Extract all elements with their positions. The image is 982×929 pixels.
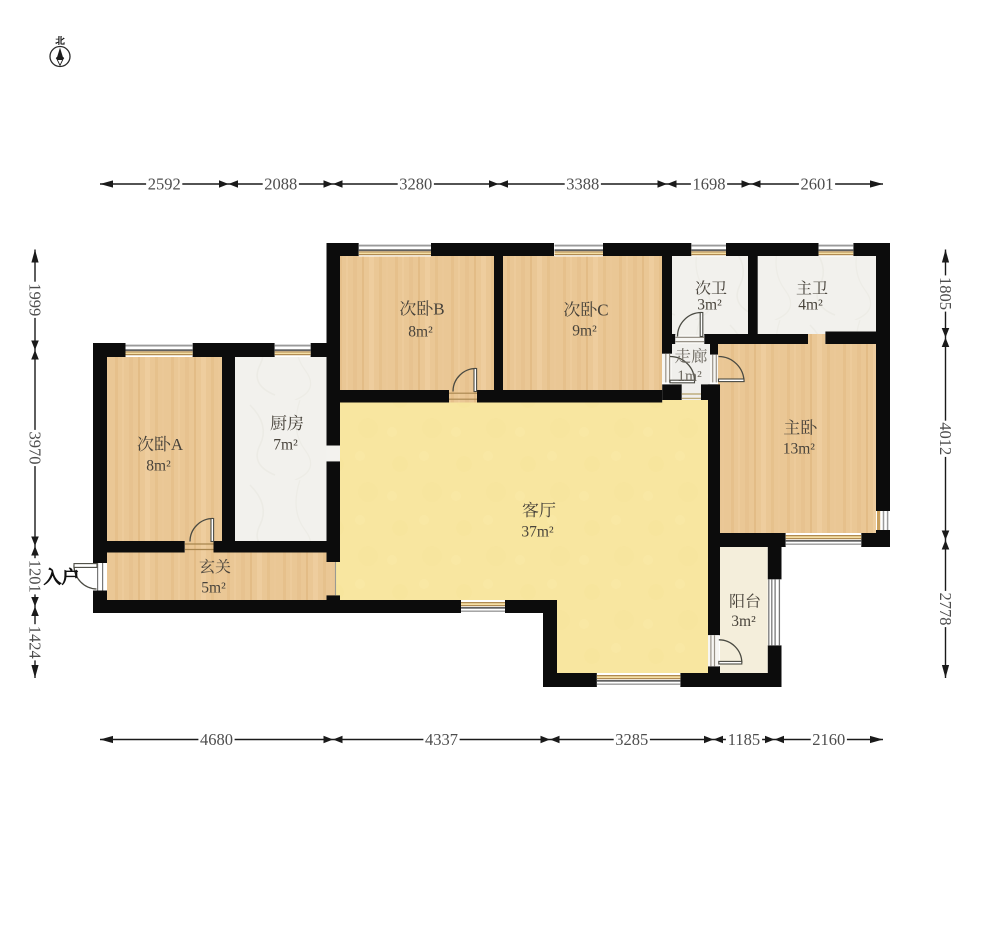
svg-text:1999: 1999 bbox=[25, 283, 44, 316]
svg-text:3285: 3285 bbox=[615, 730, 648, 749]
svg-text:37m²: 37m² bbox=[521, 523, 554, 540]
svg-text:8m²: 8m² bbox=[146, 457, 171, 474]
svg-text:2778: 2778 bbox=[936, 593, 955, 626]
svg-text:B: B bbox=[433, 299, 444, 318]
svg-text:3m²: 3m² bbox=[731, 613, 756, 630]
svg-text:13m²: 13m² bbox=[783, 440, 816, 457]
svg-text:1805: 1805 bbox=[936, 277, 955, 310]
svg-text:9m²: 9m² bbox=[572, 322, 597, 339]
svg-text:2160: 2160 bbox=[812, 730, 845, 749]
svg-text:3280: 3280 bbox=[399, 175, 432, 194]
svg-text:4337: 4337 bbox=[425, 730, 458, 749]
svg-text:1185: 1185 bbox=[728, 730, 760, 749]
svg-text:1424: 1424 bbox=[25, 626, 44, 659]
svg-text:2088: 2088 bbox=[264, 175, 297, 194]
svg-text:4m²: 4m² bbox=[798, 296, 823, 313]
svg-text:3970: 3970 bbox=[25, 432, 44, 465]
svg-text:7m²: 7m² bbox=[273, 436, 298, 453]
svg-text:1201: 1201 bbox=[25, 560, 44, 593]
svg-text:C: C bbox=[597, 300, 608, 319]
svg-text:3388: 3388 bbox=[566, 175, 599, 194]
svg-text:1m²: 1m² bbox=[677, 368, 702, 385]
svg-text:4012: 4012 bbox=[936, 422, 955, 455]
svg-text:2592: 2592 bbox=[148, 175, 181, 194]
svg-text:1698: 1698 bbox=[693, 175, 726, 194]
svg-text:2601: 2601 bbox=[801, 175, 834, 194]
svg-text:A: A bbox=[171, 435, 184, 454]
svg-text:4680: 4680 bbox=[200, 730, 233, 749]
svg-text:5m²: 5m² bbox=[201, 579, 226, 596]
svg-text:8m²: 8m² bbox=[408, 323, 433, 340]
svg-text:3m²: 3m² bbox=[697, 296, 722, 313]
